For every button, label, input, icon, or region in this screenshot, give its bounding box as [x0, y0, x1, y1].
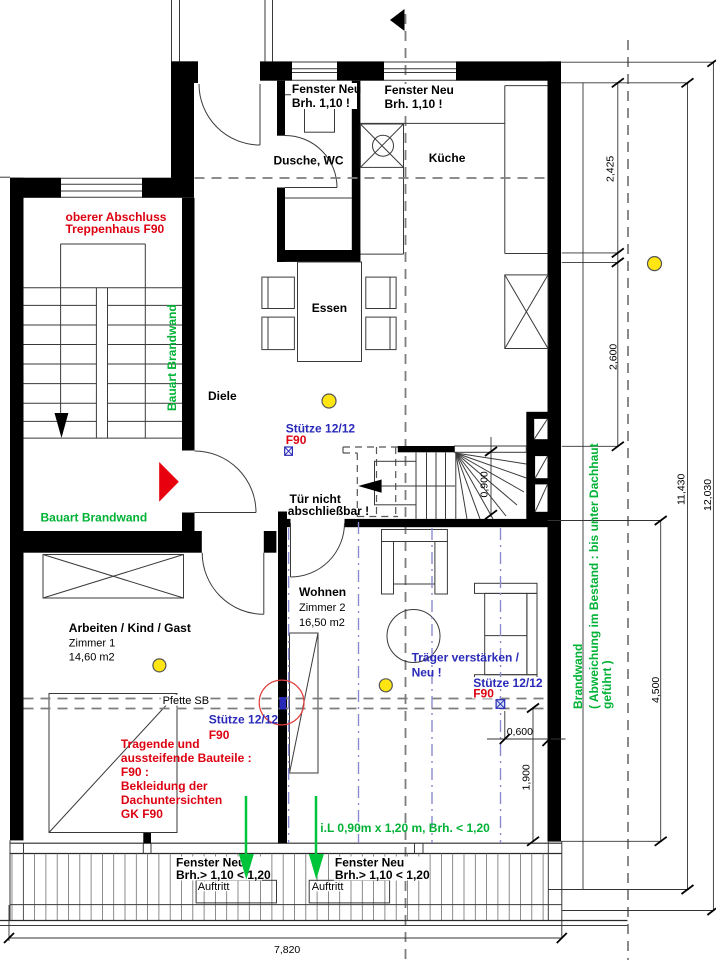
- svg-text:aussteifende Bauteile :: aussteifende Bauteile :: [121, 751, 252, 765]
- svg-text:16,50 m2: 16,50 m2: [299, 617, 345, 629]
- svg-text:Bauart Brandwand: Bauart Brandwand: [165, 304, 179, 411]
- svg-text:Brandwand: Brandwand: [571, 644, 585, 709]
- svg-text:F90 :: F90 :: [121, 765, 149, 779]
- svg-text:Brh.> 1,10 < 1,20: Brh.> 1,10 < 1,20: [176, 868, 271, 882]
- svg-text:Tragende und: Tragende und: [121, 737, 200, 751]
- svg-text:Zimmer 2: Zimmer 2: [299, 602, 345, 614]
- svg-text:Bekleidung der: Bekleidung der: [121, 779, 208, 793]
- svg-text:11,430: 11,430: [676, 474, 688, 505]
- svg-text:12,030: 12,030: [702, 479, 714, 511]
- svg-text:1,900: 1,900: [521, 764, 533, 790]
- svg-text:14,60 m2: 14,60 m2: [69, 652, 115, 664]
- svg-text:geführt ): geführt ): [600, 660, 614, 709]
- svg-text:2,600: 2,600: [608, 344, 620, 370]
- svg-text:Zimmer 1: Zimmer 1: [69, 638, 115, 650]
- svg-text:Bauart Brandwand: Bauart Brandwand: [41, 511, 148, 525]
- svg-text:Dachuntersichten: Dachuntersichten: [121, 793, 222, 807]
- svg-text:Arbeiten / Kind / Gast: Arbeiten / Kind / Gast: [69, 621, 191, 635]
- svg-text:abschließbar !: abschließbar !: [288, 504, 369, 518]
- svg-text:Auftritt: Auftritt: [312, 881, 344, 893]
- svg-text:Fenster Neu: Fenster Neu: [385, 83, 454, 97]
- svg-text:F90: F90: [473, 687, 494, 701]
- svg-text:0,600: 0,600: [507, 726, 533, 738]
- svg-text:Träger verstärken /: Träger verstärken /: [412, 651, 520, 665]
- svg-text:0,900: 0,900: [479, 471, 491, 497]
- svg-text:2,425: 2,425: [605, 156, 617, 182]
- svg-text:F90: F90: [209, 728, 230, 742]
- svg-text:Diele: Diele: [208, 389, 237, 403]
- svg-text:Neu !: Neu !: [412, 666, 442, 680]
- svg-text:Wohnen: Wohnen: [299, 585, 346, 599]
- svg-text:7,820: 7,820: [274, 944, 300, 956]
- svg-text:Küche: Küche: [429, 151, 466, 165]
- svg-text:Brh.> 1,10 < 1,20: Brh.> 1,10 < 1,20: [335, 868, 430, 882]
- svg-text:4,500: 4,500: [650, 677, 662, 703]
- svg-text:Treppenhaus F90: Treppenhaus F90: [66, 222, 165, 236]
- svg-text:Auftritt: Auftritt: [198, 881, 230, 893]
- svg-text:F90: F90: [286, 433, 307, 447]
- svg-text:Stütze 12/12: Stütze 12/12: [209, 713, 279, 727]
- svg-text:Fenster Neu: Fenster Neu: [292, 82, 361, 96]
- svg-text:( Abweichung im Bestand : bis: ( Abweichung im Bestand : bis unter Dach…: [587, 443, 601, 709]
- svg-text:Pfette SB: Pfette SB: [163, 695, 209, 707]
- svg-text:Brh. 1,10 !: Brh. 1,10 !: [292, 96, 350, 110]
- svg-text:Dusche, WC: Dusche, WC: [274, 154, 344, 168]
- svg-text:i.L 0,90m x 1,20 m, Brh. < 1,2: i.L 0,90m x 1,20 m, Brh. < 1,20: [320, 821, 490, 835]
- svg-text:Essen: Essen: [312, 301, 347, 315]
- svg-text:Brh. 1,10 !: Brh. 1,10 !: [385, 97, 443, 111]
- svg-text:GK F90: GK F90: [121, 807, 163, 821]
